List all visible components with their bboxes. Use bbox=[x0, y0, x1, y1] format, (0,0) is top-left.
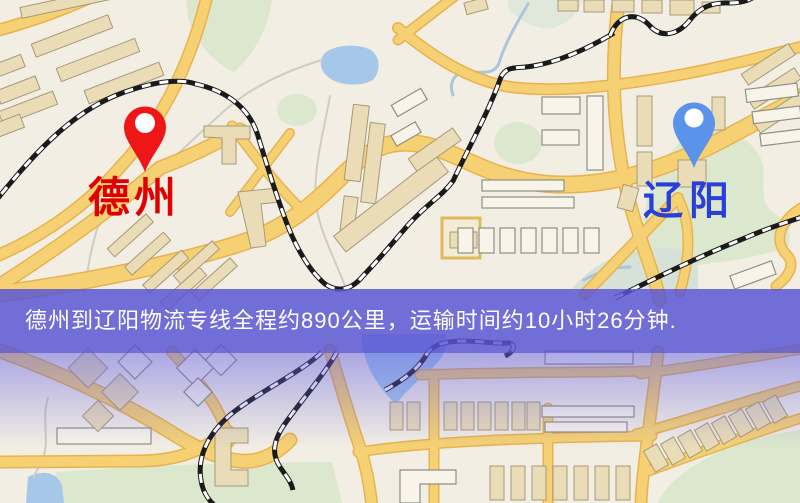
route-info-text: 德州到辽阳物流专线全程约890公里，运输时间约10小时26分钟. bbox=[0, 289, 800, 353]
origin-city-label: 德州 bbox=[88, 177, 180, 219]
origin-pin-icon bbox=[123, 102, 167, 172]
map-screenshot: 德州 辽阳 德州到辽阳物流专线全程约890公里，运输时间约10小时26分钟. bbox=[0, 0, 800, 503]
destination-pin-icon bbox=[672, 98, 716, 168]
banner-shadow-tint bbox=[0, 353, 800, 448]
route-info-banner: 德州到辽阳物流专线全程约890公里，运输时间约10小时26分钟. bbox=[0, 289, 800, 353]
map-image bbox=[0, 0, 800, 503]
destination-city-label: 辽阳 bbox=[643, 181, 735, 221]
